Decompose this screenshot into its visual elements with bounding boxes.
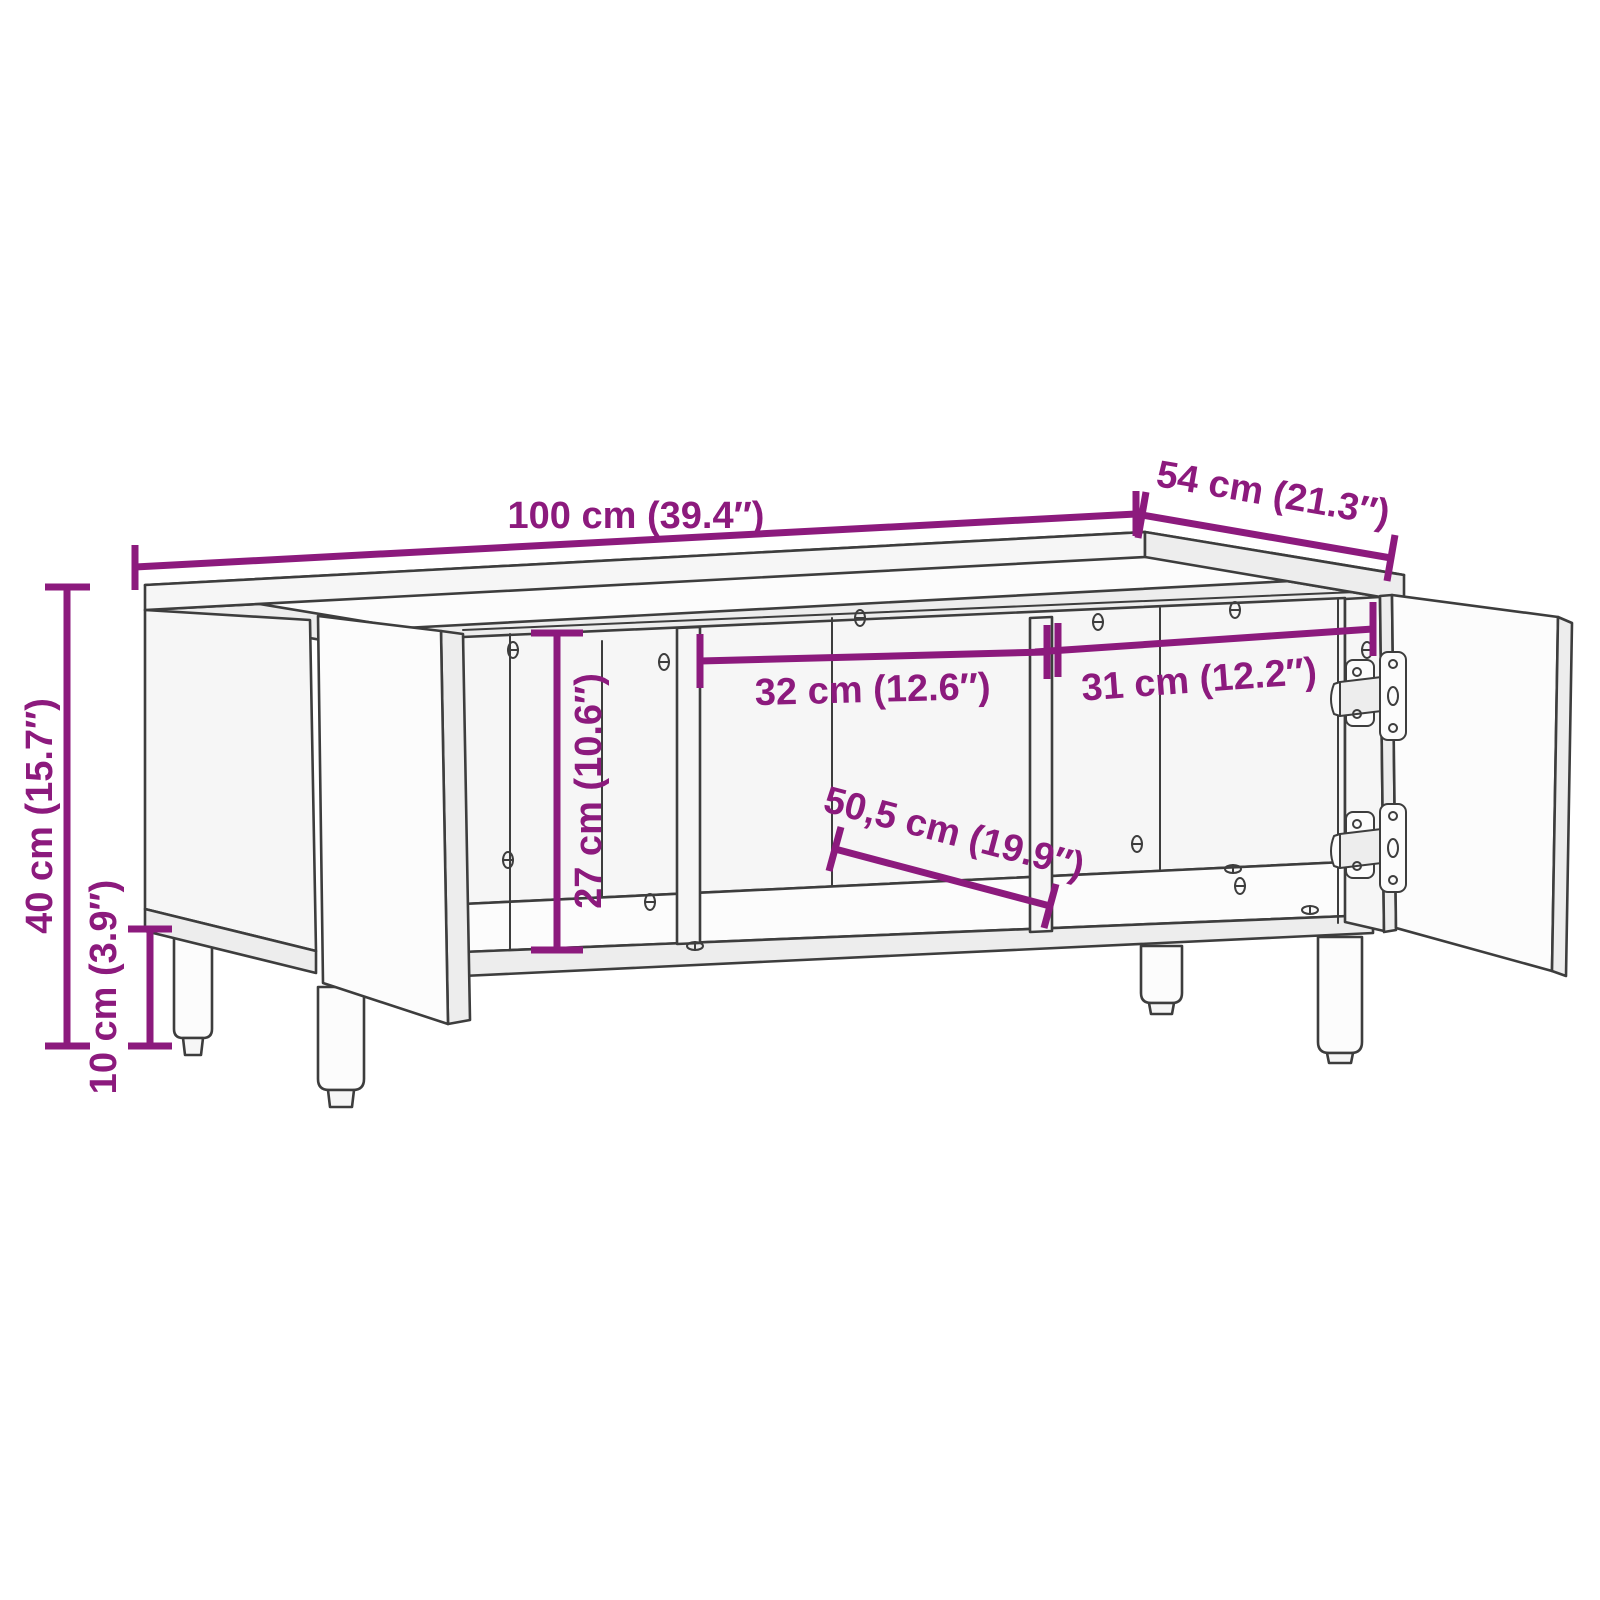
dim-inner-height-label: 27 cm (10.6″)	[568, 673, 610, 909]
leg-back-right	[1141, 946, 1182, 1014]
hinge-arm-cap	[1331, 682, 1340, 716]
left-door-face	[318, 616, 448, 1024]
leg-front-left	[318, 987, 364, 1107]
dimension-diagram: 100 cm (39.4″) 54 cm (21.3″) 40 cm (15.7…	[0, 0, 1600, 1600]
leg-foot	[1327, 1053, 1353, 1063]
dim-leg-height-label: 10 cm (3.9″)	[83, 880, 125, 1095]
right-side-panel-front	[1345, 597, 1384, 931]
left-side-panel	[145, 610, 316, 951]
dim-height-label: 40 cm (15.7″)	[19, 698, 61, 934]
right-door-open	[1380, 595, 1572, 976]
dim-middle-compartment-label: 32 cm (12.6″)	[754, 666, 991, 714]
leg-back-left	[174, 930, 212, 1055]
dim-height: 40 cm (15.7″)	[19, 587, 90, 1046]
hinge-arm-cap	[1331, 834, 1340, 868]
hinge-door-plate	[1380, 804, 1406, 892]
leg-foot	[183, 1038, 203, 1055]
leg-front-right	[1318, 937, 1362, 1063]
hinge-door-plate	[1380, 652, 1406, 740]
left-door-open	[318, 616, 470, 1024]
leg-foot	[328, 1090, 354, 1107]
dim-width-label: 100 cm (39.4″)	[508, 495, 765, 537]
leg-foot	[1149, 1003, 1174, 1014]
right-door-face	[1392, 595, 1558, 971]
